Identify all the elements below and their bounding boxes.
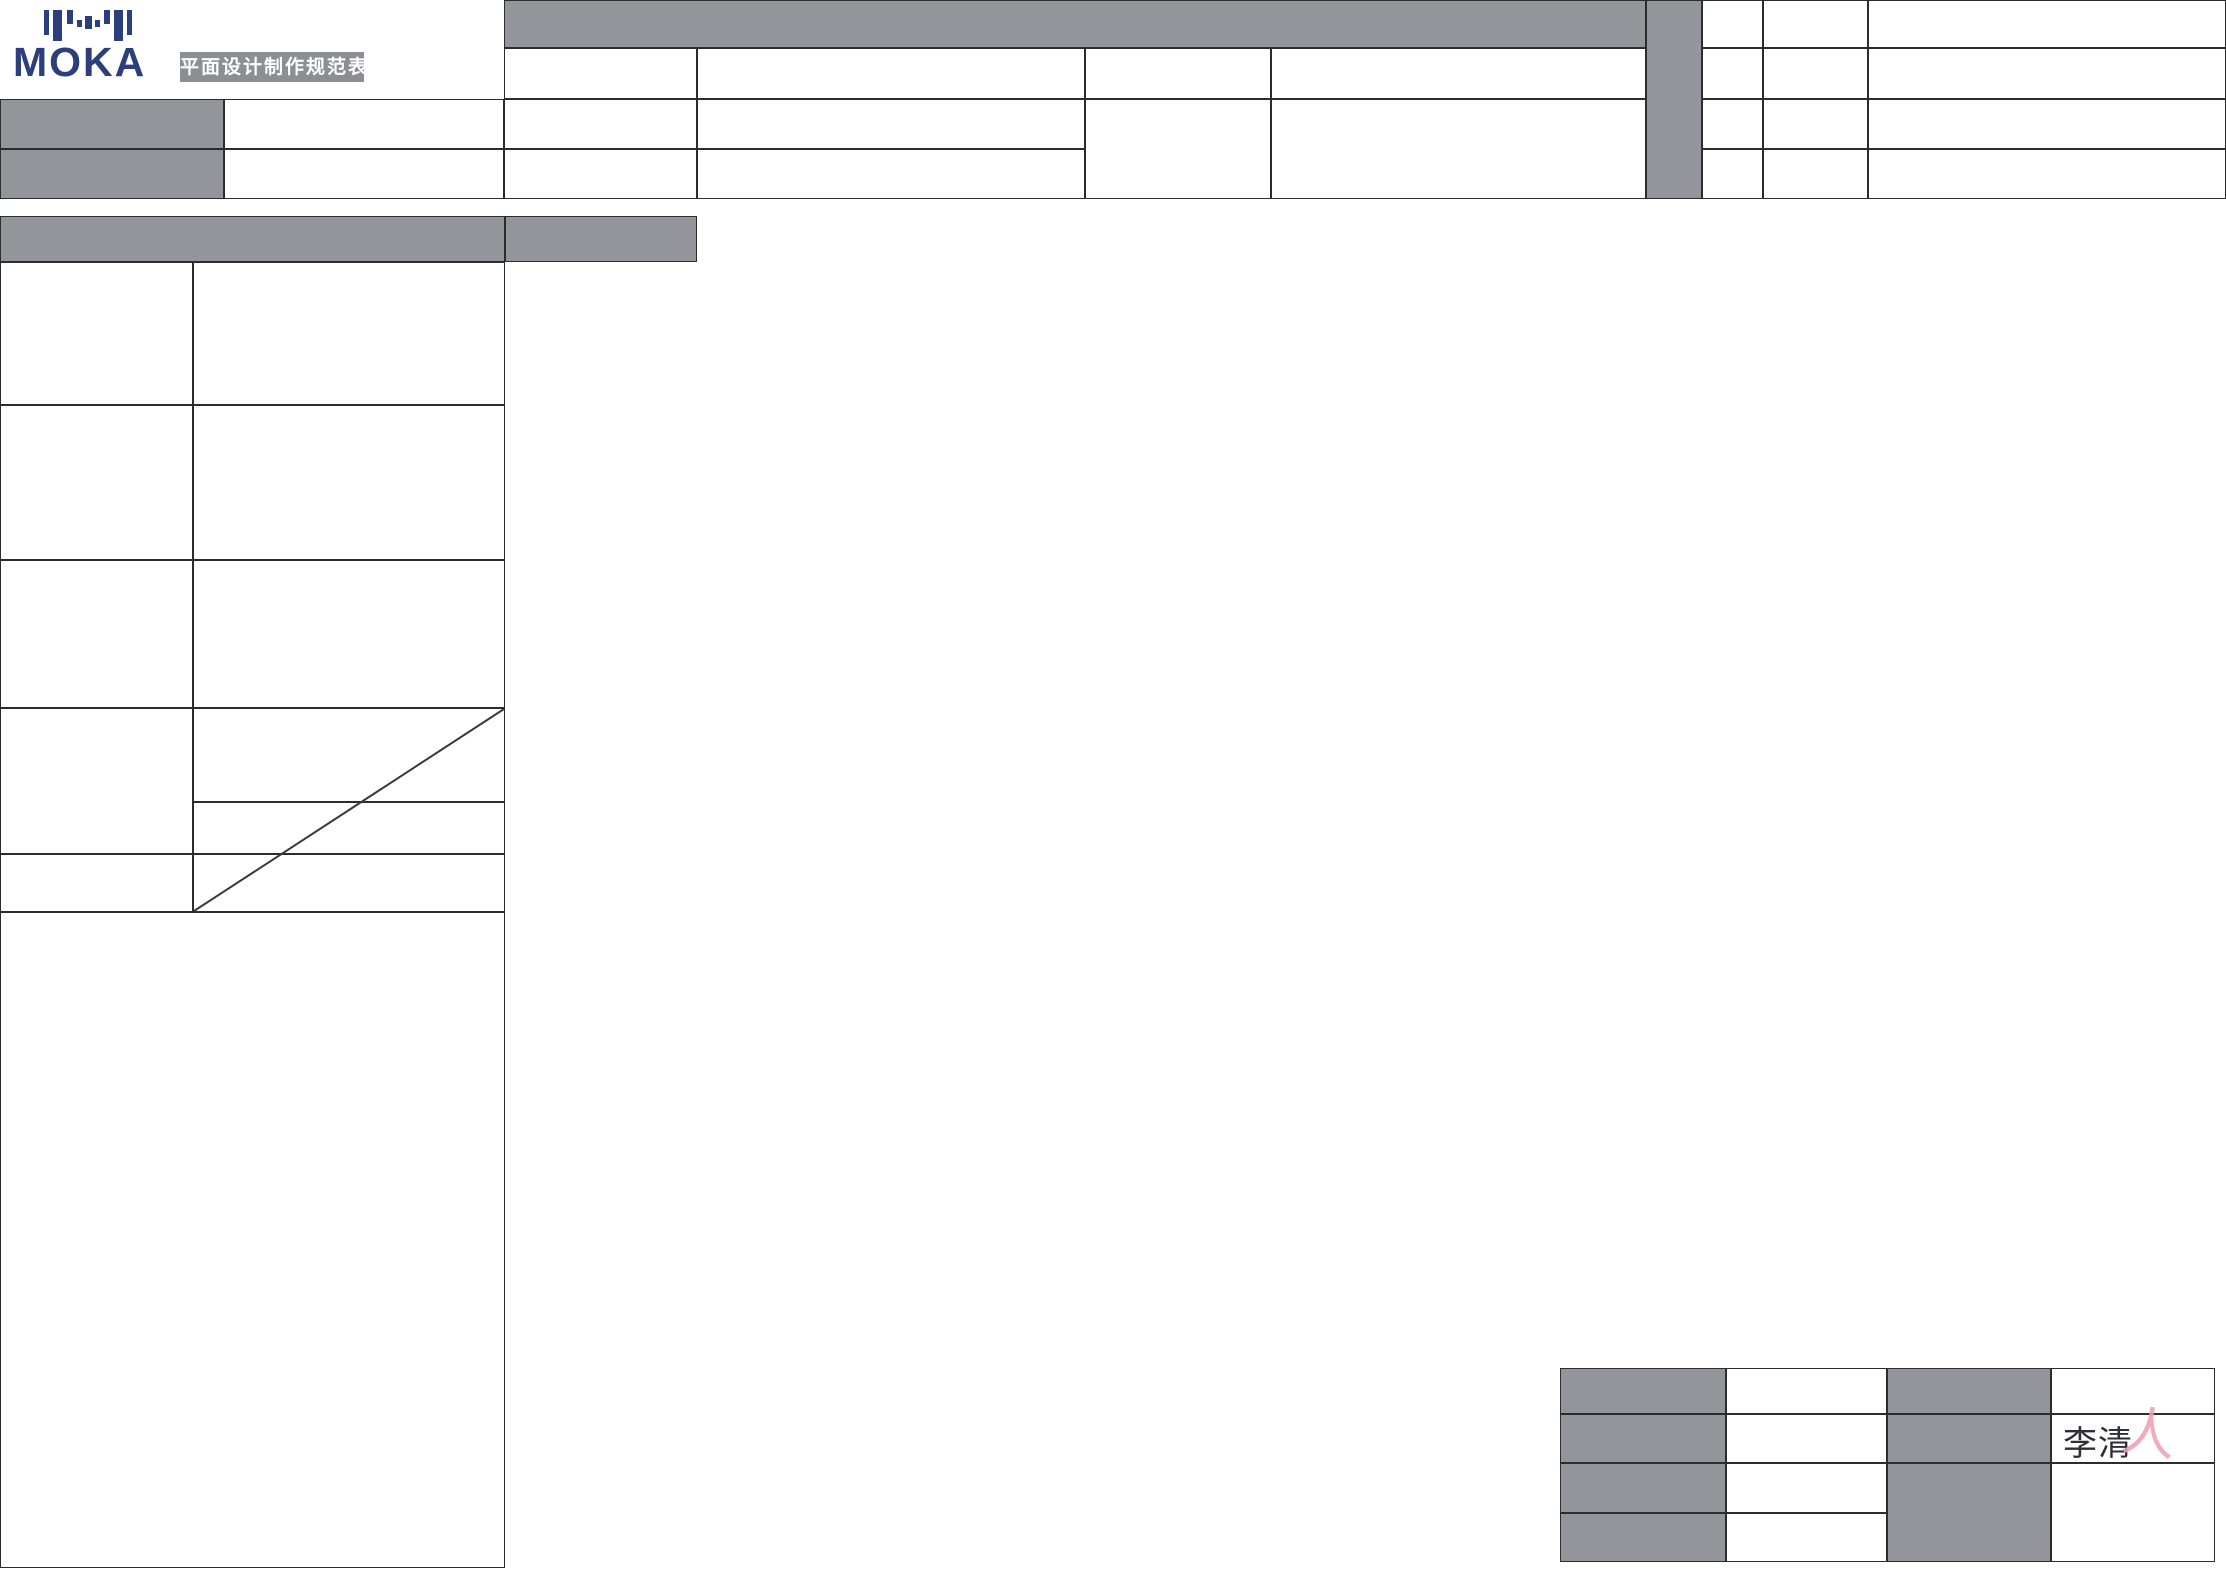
spec-table-value-cell	[193, 262, 505, 405]
top-table-header-bar	[504, 0, 1646, 48]
top-table-cell	[504, 149, 697, 199]
logo-bar	[53, 10, 62, 41]
signature-mark: 人	[2119, 1404, 2180, 1465]
approval-label-cell	[1560, 1513, 1726, 1562]
approval-label-cell	[1560, 1463, 1726, 1513]
top-table-cell	[1271, 48, 1646, 99]
top-right-table-cell	[1763, 99, 1868, 149]
top-left-label-cell	[0, 149, 224, 199]
logo-bar	[127, 10, 132, 35]
top-left-value-cell	[224, 149, 504, 199]
approval-label-cell	[1887, 1414, 2051, 1463]
top-left-label-cell	[0, 99, 224, 149]
top-table-merged-cell	[1085, 99, 1271, 199]
approval-label-cell	[1887, 1368, 2051, 1414]
top-table-cell	[504, 99, 697, 149]
top-table-cell	[504, 48, 697, 99]
approval-value-merged-cell	[2051, 1463, 2215, 1562]
approval-label-merged-cell	[1887, 1463, 2051, 1562]
spec-table-notes-cell	[0, 912, 505, 1568]
logo-bar	[104, 10, 110, 24]
top-right-table-cell	[1868, 149, 2226, 199]
top-left-value-cell	[224, 99, 504, 149]
logo-bar	[67, 10, 73, 24]
logo-text: MOKA	[13, 44, 173, 82]
approval-label-cell	[1560, 1414, 1726, 1463]
top-right-table-cell	[1763, 149, 1868, 199]
top-right-table-cell	[1702, 48, 1763, 99]
logo-bar	[77, 20, 82, 27]
top-table-cell	[697, 149, 1085, 199]
logo-bar	[85, 16, 92, 29]
spec-table-value-cell	[193, 560, 505, 708]
top-right-table-cell	[1702, 0, 1763, 48]
gray-divider-column	[1646, 0, 1702, 199]
top-right-table-cell	[1763, 48, 1868, 99]
top-table-cell	[1085, 48, 1271, 99]
top-table-cell	[697, 48, 1085, 99]
spec-table-value-cell	[193, 405, 505, 560]
logo-bar	[95, 20, 100, 27]
approval-value-cell	[1726, 1368, 1887, 1414]
logo-bar	[114, 10, 123, 41]
moka-logo-icon	[44, 10, 132, 42]
approval-label-cell	[1560, 1368, 1726, 1414]
approval-value-cell	[1726, 1414, 1887, 1463]
top-right-table-cell	[1702, 149, 1763, 199]
spec-table-label-cell	[0, 854, 193, 912]
spec-table-header-cell	[0, 216, 505, 262]
logo-bar	[44, 10, 49, 35]
spec-table-header-cell	[505, 216, 697, 262]
spec-table-label-cell	[0, 708, 193, 854]
approval-value-cell	[1726, 1513, 1887, 1562]
spec-sheet-badge: 平面设计制作规范表	[180, 52, 364, 82]
top-table-cell	[697, 99, 1085, 149]
spec-table-label-cell	[0, 405, 193, 560]
top-right-table-cell	[1702, 99, 1763, 149]
spec-table-label-cell	[0, 262, 193, 405]
signature-cell: 李清 人	[2051, 1414, 2215, 1463]
spec-table-label-cell	[0, 560, 193, 708]
approval-value-cell	[1726, 1463, 1887, 1513]
top-table-merged-cell	[1271, 99, 1646, 199]
top-right-table-cell	[1868, 48, 2226, 99]
document-page: MOKA 平面设计制作规范表	[0, 0, 2226, 1582]
top-right-table-cell	[1868, 99, 2226, 149]
top-right-table-cell	[1763, 0, 1868, 48]
diagonal-strike-line	[193, 708, 505, 912]
top-right-table-cell	[1868, 0, 2226, 48]
